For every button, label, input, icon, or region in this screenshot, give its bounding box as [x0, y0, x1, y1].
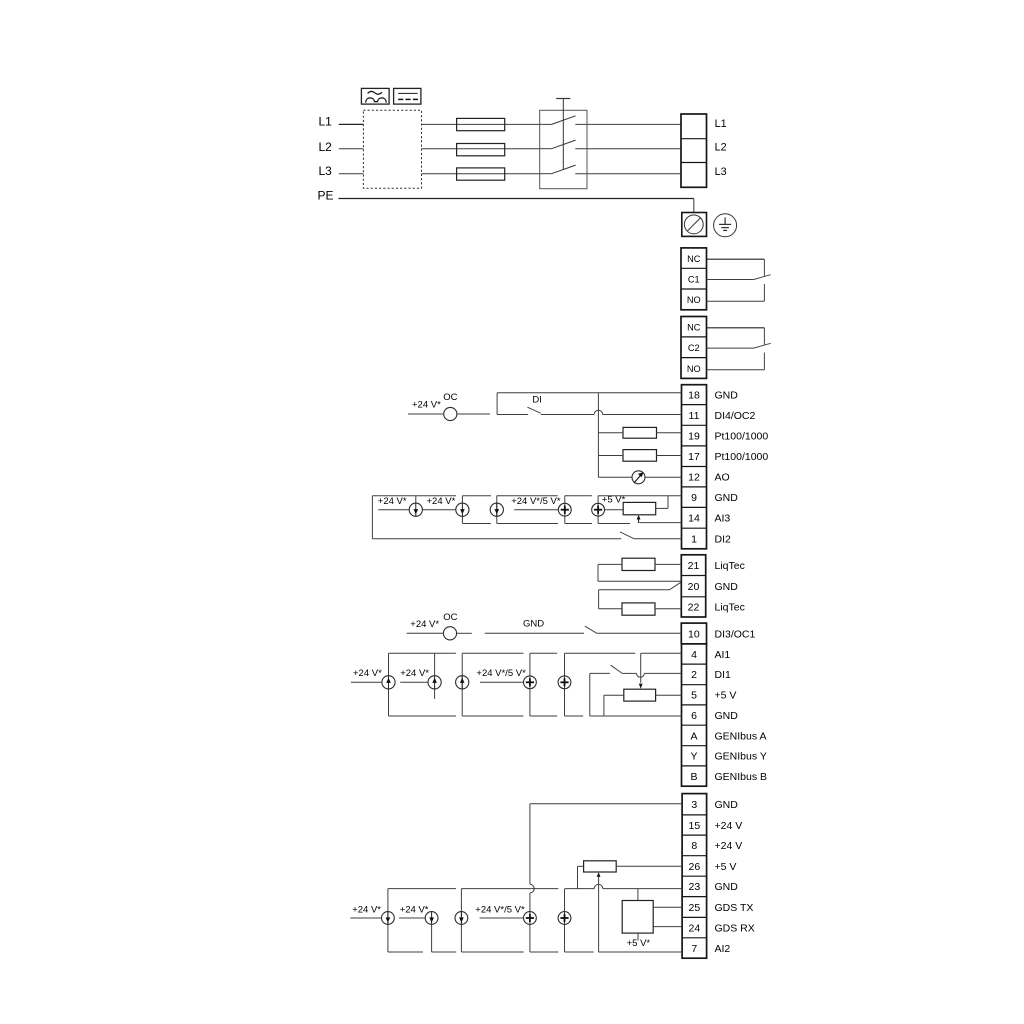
svg-text:Pt100/1000: Pt100/1000	[715, 430, 769, 442]
svg-text:8: 8	[691, 840, 697, 852]
svg-text:C2: C2	[688, 343, 700, 353]
svg-text:2: 2	[691, 669, 697, 681]
svg-text:B: B	[690, 771, 697, 783]
svg-text:L1: L1	[319, 115, 333, 129]
svg-text:OC: OC	[443, 392, 457, 403]
svg-text:+5 V: +5 V	[715, 861, 737, 873]
svg-text:L2: L2	[715, 142, 727, 154]
svg-text:LiqTec: LiqTec	[715, 602, 745, 614]
svg-text:NC: NC	[687, 254, 701, 264]
svg-text:GDS TX: GDS TX	[715, 902, 754, 914]
svg-text:AO: AO	[715, 472, 730, 484]
svg-text:1: 1	[691, 533, 697, 545]
svg-text:NO: NO	[687, 295, 701, 305]
svg-text:14: 14	[688, 513, 700, 525]
svg-text:5: 5	[691, 690, 697, 702]
svg-text:NO: NO	[687, 364, 701, 374]
svg-text:GND: GND	[715, 881, 739, 893]
svg-text:+24 V: +24 V	[715, 820, 743, 832]
svg-text:L1: L1	[715, 118, 727, 130]
svg-text:21: 21	[688, 560, 700, 572]
svg-text:+24 V*: +24 V*	[400, 905, 429, 916]
svg-text:18: 18	[688, 389, 700, 401]
svg-text:+24 V*: +24 V*	[400, 668, 429, 679]
svg-text:GND: GND	[715, 581, 739, 593]
svg-text:+24 V: +24 V	[715, 840, 743, 852]
svg-text:+24 V*/5 V*: +24 V*/5 V*	[475, 905, 525, 916]
svg-text:15: 15	[689, 820, 701, 832]
svg-text:11: 11	[689, 410, 700, 422]
svg-text:26: 26	[689, 861, 701, 873]
svg-text:GND: GND	[715, 492, 739, 504]
svg-text:DI3/OC1: DI3/OC1	[715, 628, 756, 640]
svg-text:+24 V*/5 V*: +24 V*/5 V*	[511, 496, 561, 507]
svg-text:4: 4	[691, 649, 697, 661]
svg-text:23: 23	[689, 881, 701, 893]
svg-text:AI3: AI3	[715, 513, 731, 525]
svg-text:DI4/OC2: DI4/OC2	[715, 410, 756, 422]
svg-text:17: 17	[688, 451, 700, 463]
svg-text:19: 19	[688, 430, 700, 442]
svg-text:+5 V*: +5 V*	[627, 938, 651, 949]
svg-text:+24 V*/5 V*: +24 V*/5 V*	[476, 668, 526, 679]
svg-text:A: A	[690, 730, 697, 742]
svg-text:+24 V*: +24 V*	[412, 399, 441, 410]
svg-text:+24 V*: +24 V*	[427, 496, 456, 507]
svg-text:DI2: DI2	[715, 533, 732, 545]
svg-text:GND: GND	[715, 710, 739, 722]
svg-text:GND: GND	[715, 799, 739, 811]
svg-text:GENIbus B: GENIbus B	[715, 771, 768, 783]
svg-text:GDS RX: GDS RX	[715, 922, 755, 934]
svg-text:GND: GND	[715, 389, 739, 401]
svg-text:Pt100/1000: Pt100/1000	[715, 451, 769, 463]
svg-text:+24 V*: +24 V*	[410, 619, 439, 630]
svg-text:22: 22	[688, 602, 700, 614]
svg-text:AI2: AI2	[715, 943, 731, 955]
svg-text:10: 10	[688, 628, 700, 640]
svg-text:L3: L3	[319, 164, 333, 178]
svg-text:DI1: DI1	[715, 669, 732, 681]
svg-text:L2: L2	[319, 140, 333, 154]
svg-text:20: 20	[688, 581, 700, 593]
svg-text:NC: NC	[687, 323, 701, 333]
svg-text:9: 9	[691, 492, 697, 504]
svg-text:6: 6	[691, 710, 697, 722]
svg-text:+5 V: +5 V	[715, 690, 737, 702]
svg-text:DI: DI	[532, 394, 542, 405]
svg-text:OC: OC	[443, 612, 457, 623]
svg-text:3: 3	[691, 799, 697, 811]
svg-text:24: 24	[689, 922, 701, 934]
svg-text:GENIbus A: GENIbus A	[715, 730, 767, 742]
svg-text:+24 V*: +24 V*	[378, 496, 407, 507]
svg-text:+24 V*: +24 V*	[353, 668, 382, 679]
svg-text:LiqTec: LiqTec	[715, 560, 745, 572]
svg-text:PE: PE	[318, 189, 334, 203]
svg-text:AI1: AI1	[715, 649, 731, 661]
svg-text:7: 7	[691, 943, 697, 955]
svg-text:+24 V*: +24 V*	[352, 905, 381, 916]
svg-text:25: 25	[689, 902, 701, 914]
svg-text:GND: GND	[523, 619, 544, 630]
svg-text:Y: Y	[690, 751, 697, 763]
svg-text:GENIbus Y: GENIbus Y	[715, 751, 767, 763]
svg-text:12: 12	[688, 472, 700, 484]
svg-text:L3: L3	[715, 166, 727, 178]
svg-text:C1: C1	[688, 274, 700, 284]
